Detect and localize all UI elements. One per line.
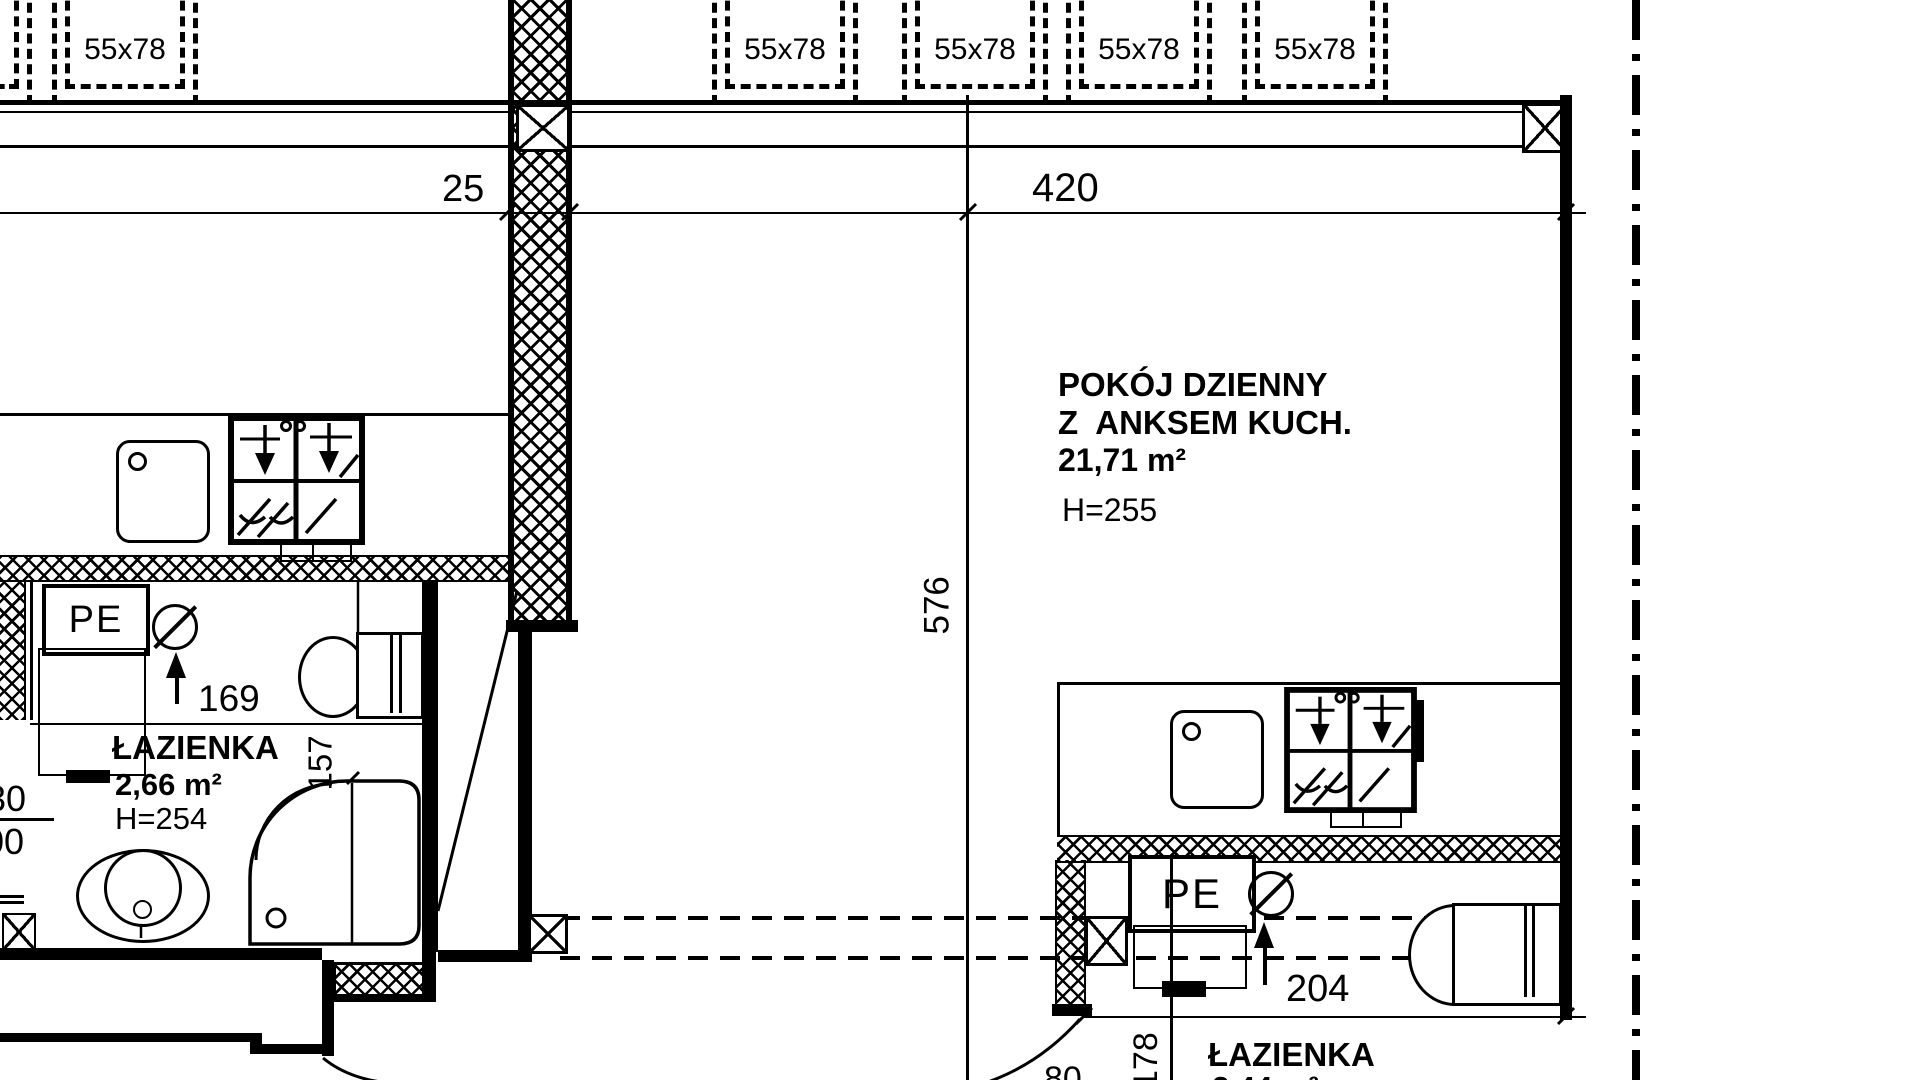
- bath2-wall-line: [1170, 858, 1173, 1080]
- bath2-wall-cap: [1052, 1004, 1092, 1016]
- hatched-wall-column: [514, 0, 566, 628]
- sink-tap-icon: [1182, 722, 1201, 741]
- bottom-wall: [438, 950, 532, 962]
- wall-edge: [508, 0, 514, 628]
- vent-arrow-icon: [166, 652, 186, 678]
- window-box: 55x78: [1066, 0, 1212, 105]
- edge-tick: [0, 895, 24, 898]
- room-divider-line: [966, 95, 969, 1080]
- bath1-area: 2,66 m²: [115, 769, 222, 800]
- bath2-area: 2,44 m²: [1212, 1072, 1319, 1080]
- edge-tick: [0, 901, 24, 904]
- bath1-height: H=254: [115, 803, 207, 834]
- wall-nib: [1414, 700, 1424, 762]
- outer-step-wall: [0, 1033, 258, 1042]
- window-box-inner: 55x78: [725, 0, 845, 89]
- basin-drain: [133, 900, 152, 919]
- stove-icon: [1282, 687, 1419, 813]
- bottom-hatch-cap: [333, 994, 436, 1002]
- bathroom-dim-line: [30, 723, 436, 725]
- vent-arrow-stem: [1263, 948, 1267, 985]
- window-box: 55x78: [52, 0, 198, 105]
- dimension-label-420: 420: [1032, 168, 1099, 208]
- window-size-label: 55x78: [744, 7, 826, 67]
- toilet-tank-line: [1524, 906, 1527, 997]
- shower-drain: [267, 909, 285, 927]
- dimension-label-204: 204: [1286, 970, 1349, 1008]
- dimension-label-169: 169: [198, 680, 260, 717]
- electrical-box-pe: PE: [42, 584, 150, 656]
- dimension-line-top: [0, 212, 1586, 214]
- bath1-name: ŁAZIENKA: [112, 731, 279, 764]
- wall-crossing-marker: [516, 104, 570, 152]
- overhead-dashed-line: [560, 956, 1438, 960]
- window-box: 55x78: [712, 0, 858, 105]
- door-jamb-wall: [518, 630, 532, 952]
- living-room-name-line2: Z ANKSEM KUCH.: [1058, 406, 1352, 439]
- bath2-name: ŁAZIENKA: [1208, 1038, 1375, 1071]
- dimension-label-25: 25: [442, 170, 484, 208]
- edge-dimension-00: 00: [0, 824, 24, 860]
- plot-boundary-line: [1632, 0, 1640, 1080]
- window-box-inner: 55x78: [915, 0, 1035, 89]
- dim-tick: [347, 772, 359, 784]
- bath2-dim-line: [1082, 1016, 1586, 1018]
- shower-tray: [250, 781, 419, 944]
- window-box-inner: 55x78: [1255, 0, 1375, 89]
- vent-arrow-icon: [1254, 922, 1274, 948]
- window-size-label: 55x78: [84, 7, 166, 67]
- washer-tab: [1162, 981, 1206, 997]
- dimension-label-178: 178: [1129, 1025, 1163, 1080]
- living-room-name-line1: POKÓJ DZIENNY: [1058, 368, 1328, 401]
- living-room-height: H=255: [1062, 494, 1157, 526]
- floor-plan-canvas: 55x78 55x78 55x78 55x78 55x78 25 420: [0, 0, 1920, 1080]
- dimension-label-157: 157: [304, 727, 337, 791]
- dimension-label-576: 576: [920, 569, 955, 635]
- drain-symbol-icon: [1248, 871, 1294, 917]
- window-box: 55x78: [902, 0, 1048, 105]
- stove-icon: [228, 415, 365, 545]
- window-box-inner: 55x78: [1079, 0, 1199, 89]
- edge-marker: [2, 913, 36, 951]
- outer-step-wall: [250, 1044, 334, 1054]
- toilet-tank-line: [1532, 906, 1535, 997]
- dimension-label-80: 80: [1044, 1062, 1082, 1080]
- electrical-box-pe: PE: [1128, 855, 1256, 933]
- wall-edge: [566, 0, 572, 628]
- washer-tab: [66, 770, 110, 783]
- toilet-tank-line: [390, 635, 393, 713]
- entry-door-arc: [323, 1058, 381, 1080]
- exterior-wall-face: [0, 100, 1572, 105]
- partition-wall-strip: [0, 555, 508, 582]
- duct-marker: [528, 914, 568, 954]
- stove-tab: [1330, 810, 1364, 828]
- right-exterior-wall: [1560, 95, 1572, 1020]
- interior-wall-face: [0, 145, 1572, 148]
- drain-symbol-icon: [152, 604, 198, 650]
- pe-label: PE: [69, 599, 124, 642]
- window-size-label: 55x78: [934, 7, 1016, 67]
- bath2-wall-hatch: [1055, 860, 1086, 1008]
- window-size-label: 55x78: [1098, 7, 1180, 67]
- toilet-tank: [1452, 903, 1562, 1006]
- edge-dimension-30: 30: [0, 781, 26, 817]
- stove-tab: [1362, 810, 1402, 828]
- glazing-line: [0, 111, 1572, 113]
- window-box-inner: [0, 0, 19, 89]
- washer-outline: [1133, 925, 1247, 989]
- wall-line: [30, 580, 33, 720]
- vent-arrow-stem: [175, 678, 179, 704]
- entry-corner-wall: [322, 960, 334, 1056]
- kitchen2-counter-left: [1057, 682, 1060, 835]
- door-jamb-wall: [422, 580, 438, 952]
- living-room-area: 21,71 m²: [1058, 444, 1186, 476]
- wall-end-cap: [506, 620, 578, 632]
- door-leaf-line: [438, 591, 517, 911]
- window-box-inner: 55x78: [65, 0, 185, 89]
- kitchen2-counter-edge: [1057, 682, 1560, 685]
- window-box: 55x78: [1242, 0, 1388, 105]
- left-wall-hatch: [0, 580, 26, 720]
- bottom-wall: [0, 948, 322, 960]
- toilet-tank-line: [399, 635, 402, 713]
- window-size-label: 55x78: [1274, 7, 1356, 67]
- duct-marker: [1085, 916, 1128, 966]
- shower-door-arc: [256, 784, 332, 860]
- overhead-dashed-line: [560, 916, 1438, 920]
- window-box-partial: [0, 0, 32, 105]
- kitchen-counter-edge: [0, 413, 508, 416]
- sink-tap-icon: [128, 452, 147, 471]
